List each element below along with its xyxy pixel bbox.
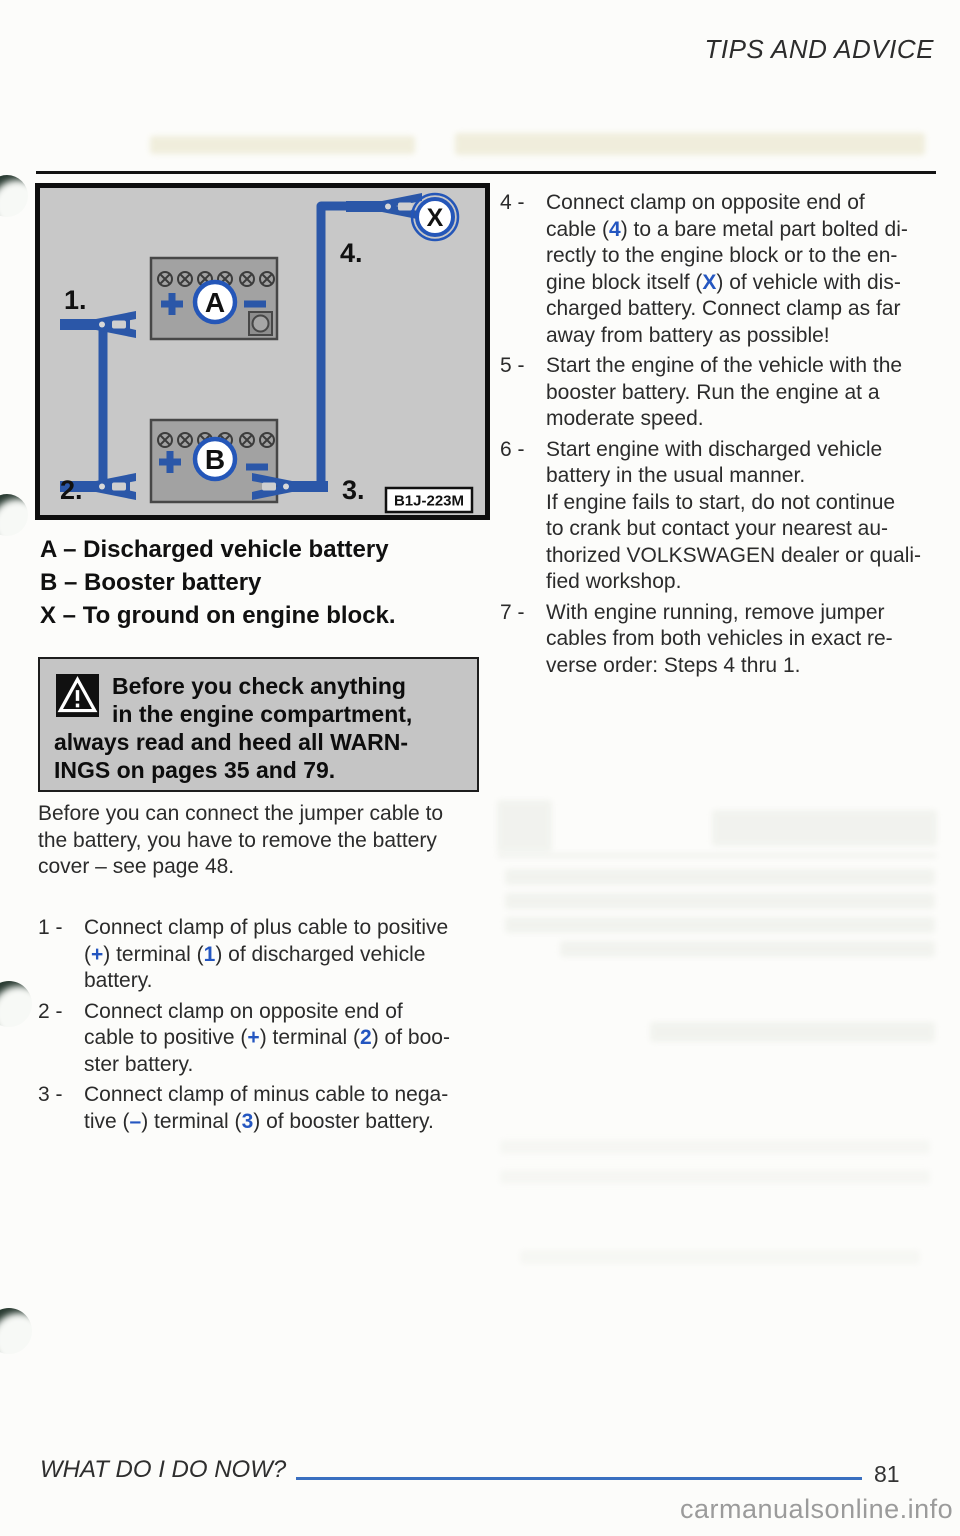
callout-a: A (195, 282, 235, 322)
binder-hole-artifact (0, 1308, 32, 1354)
minus-symbol (246, 464, 268, 471)
positive-jumper-cable (103, 324, 130, 486)
intro-paragraph: Before you can connect the jumper cable … (38, 801, 443, 881)
binder-hole-artifact (0, 494, 28, 536)
callout-a-label: A (205, 287, 225, 318)
page-number: 81 (874, 1461, 900, 1488)
callout-b: B (195, 439, 235, 479)
steps-left-column: 1 - Connect clamp of plus cable to posit… (38, 915, 486, 1139)
figure-label-3: 3. (342, 475, 365, 505)
clamp-1 (60, 311, 136, 338)
figure-code: B1J-223M (394, 493, 464, 510)
bleed-through-artifact (497, 853, 937, 858)
legend-item-b: B – Booster battery (40, 566, 396, 599)
callout-b-label: B (205, 444, 225, 475)
figure-label-4: 4. (340, 238, 363, 268)
step-text: Start the engine of the vehicle with the… (546, 353, 940, 433)
binder-hole-artifact (0, 175, 28, 217)
footer-section-title: WHAT DO I DO NOW? (40, 1456, 286, 1484)
step-text: Start engine with discharged vehiclebatt… (546, 437, 940, 596)
step-number: 3 - (38, 1082, 84, 1135)
page-title: TIPS AND ADVICE (704, 34, 934, 65)
step-number: 2 - (38, 999, 84, 1079)
step-number: 4 - (500, 190, 546, 349)
step-text: With engine running, remove jumpercables… (546, 600, 940, 680)
step-number: 5 - (500, 353, 546, 433)
step-1: 1 - Connect clamp of plus cable to posit… (38, 915, 486, 995)
bleed-through-artifact (712, 810, 937, 846)
warning-box: Before you check anythingin the engine c… (38, 657, 479, 792)
step-text: Connect clamp on opposite end ofcable (4… (546, 190, 940, 349)
bleed-through-artifact (560, 941, 935, 957)
clamp-4 (346, 193, 422, 220)
bleed-through-artifact (505, 869, 935, 885)
footer-rule (296, 1477, 862, 1480)
figure-code-box: B1J-223M (386, 488, 472, 512)
step-text: Connect clamp of minus cable to nega-tiv… (84, 1082, 486, 1135)
step-number: 7 - (500, 600, 546, 680)
step-number: 6 - (500, 437, 546, 596)
figure-label-1: 1. (64, 285, 87, 315)
bleed-through-artifact (455, 133, 925, 155)
step-7: 7 - With engine running, remove jumperca… (500, 600, 940, 680)
step-number: 1 - (38, 915, 84, 995)
step-4: 4 - Connect clamp on opposite end ofcabl… (500, 190, 940, 349)
warning-triangle-icon (56, 674, 99, 717)
header-rule (36, 171, 936, 174)
manual-page: TIPS AND ADVICE (0, 0, 960, 1536)
jump-start-diagram: A B X 1. 2. 3. 4. B1J-223M (40, 188, 485, 515)
bleed-through-artifact (500, 1170, 930, 1184)
step-5: 5 - Start the engine of the vehicle with… (500, 353, 940, 433)
bleed-through-artifact (505, 893, 935, 909)
bleed-through-artifact (520, 1250, 920, 1264)
bleed-through-artifact (497, 800, 552, 852)
steps-right-column: 4 - Connect clamp on opposite end ofcabl… (500, 190, 940, 683)
bleed-through-artifact (150, 136, 415, 154)
bleed-through-artifact (505, 917, 935, 933)
figure-label-2: 2. (60, 475, 83, 505)
bleed-through-artifact (650, 1022, 935, 1042)
step-text: Connect clamp on opposite end ofcable to… (84, 999, 486, 1079)
step-3: 3 - Connect clamp of minus cable to nega… (38, 1082, 486, 1135)
minus-symbol (244, 301, 266, 308)
callout-x: X (412, 194, 458, 240)
legend-item-x: X – To ground on engine block. (40, 599, 396, 632)
binder-hole-artifact (0, 981, 32, 1027)
warning-text: Before you check anythingin the engine c… (54, 672, 463, 784)
step-6: 6 - Start engine with discharged vehicle… (500, 437, 940, 596)
watermark: carmanualsonline.info (680, 1494, 953, 1525)
step-text: Connect clamp of plus cable to positive(… (84, 915, 486, 995)
legend-item-a: A – Discharged vehicle battery (40, 533, 396, 566)
figure-legend: A – Discharged vehicle battery B – Boost… (40, 533, 396, 632)
callout-x-label: X (427, 204, 444, 232)
jump-start-figure: A B X 1. 2. 3. 4. B1J-223M (35, 183, 490, 520)
bleed-through-artifact (500, 1140, 930, 1154)
step-2: 2 - Connect clamp on opposite end ofcabl… (38, 999, 486, 1079)
